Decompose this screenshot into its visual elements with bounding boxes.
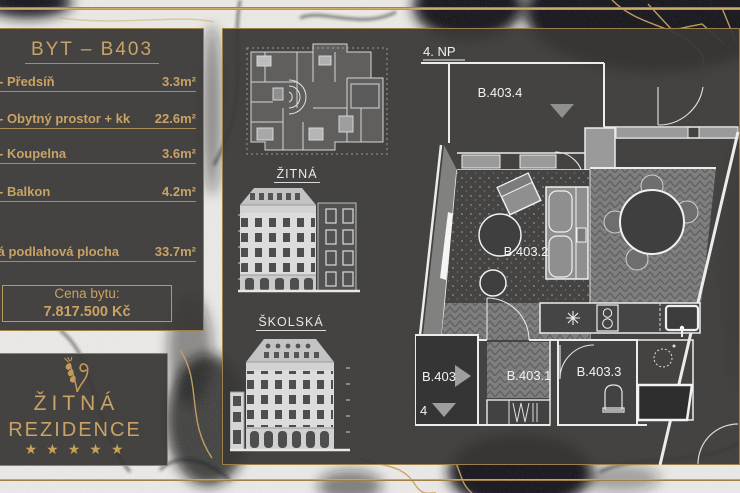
brand-name-line1: ŽITNÁ: [0, 392, 168, 416]
room-label: - Obytný prostor + kk: [0, 111, 130, 126]
terrace-outline: [421, 63, 604, 143]
room-label: - Koupelna: [0, 146, 66, 161]
svg-text:4. NP: 4. NP: [423, 44, 456, 59]
utility-niche: [637, 340, 693, 420]
total-area-label: Celková podlahová plocha: [0, 244, 119, 259]
room-row-predsin: - Předsíň 3.3m²: [0, 74, 196, 92]
wheat-icon: [57, 357, 93, 393]
price-box: Cena bytu: 7.817.500 Kč: [2, 285, 172, 322]
corner-arc: [698, 424, 738, 464]
floor-number: 4: [420, 403, 427, 418]
rating-stars: ★★★★★: [0, 441, 168, 458]
room-label-bath: B.403.3: [577, 364, 622, 379]
apartment-title: BYT – B403: [0, 39, 204, 64]
shaft-block: [638, 385, 692, 420]
room-label-entry: B.403: [422, 369, 456, 384]
room-label: - Předsíň: [0, 74, 55, 89]
room-label-hall: B.403.1: [507, 368, 552, 383]
price-label: Cena bytu:: [3, 286, 171, 303]
street-label-zitna: ŽITNÁ: [252, 167, 342, 181]
bathroom: [558, 340, 637, 425]
kitchen-counter: [441, 303, 700, 340]
site-plan-drawing: [243, 38, 391, 162]
sofa-bed: [546, 187, 588, 279]
street-label-text: ŽITNÁ: [274, 167, 319, 183]
apartment-title-text: BYT – B403: [25, 39, 159, 64]
street-label-text: ŠKOLSKÁ: [256, 315, 325, 331]
zitna-elevation-drawing: [238, 185, 360, 293]
total-area-value: 33.7m²: [155, 244, 196, 259]
washer-icon: [654, 349, 672, 367]
terrace-arrow-icon: [550, 104, 574, 118]
side-table: [480, 270, 506, 296]
price-value: 7.817.500 Kč: [3, 303, 171, 321]
room-area: 3.3m²: [162, 74, 196, 89]
fridge-icon: [566, 311, 580, 325]
skolska-elevation-drawing: [230, 332, 350, 456]
bottom-gold-divider: [0, 479, 740, 481]
floor-label: 4. NP: [423, 44, 465, 60]
room-area: 22.6m²: [155, 111, 196, 126]
north-wall: [604, 87, 738, 138]
street-label-skolska: ŠKOLSKÁ: [246, 315, 336, 329]
room-label-terrace: B.403.4: [478, 85, 523, 100]
brochure-page: BYT – B403 - Předsíň 3.3m² - Obytný pros…: [0, 0, 740, 493]
room-label-living: B.403.2: [504, 244, 549, 259]
room-row-obytny: - Obytný prostor + kk 22.6m²: [0, 111, 196, 129]
wardrobe: [487, 400, 550, 425]
room-area: 3.6m²: [162, 146, 196, 161]
room-area: 4.2m²: [162, 184, 196, 199]
room-row-balkon: - Balkon 4.2m²: [0, 184, 196, 202]
top-gold-divider: [0, 7, 740, 10]
brand-name-line2: REZIDENCE: [0, 419, 168, 442]
floor-plan: 4. NP B.403.4: [415, 40, 740, 465]
room-label: - Balkon: [0, 184, 50, 199]
total-area-row: Celková podlahová plocha 33.7m²: [0, 244, 196, 262]
room-row-koupelna: - Koupelna 3.6m²: [0, 146, 196, 164]
